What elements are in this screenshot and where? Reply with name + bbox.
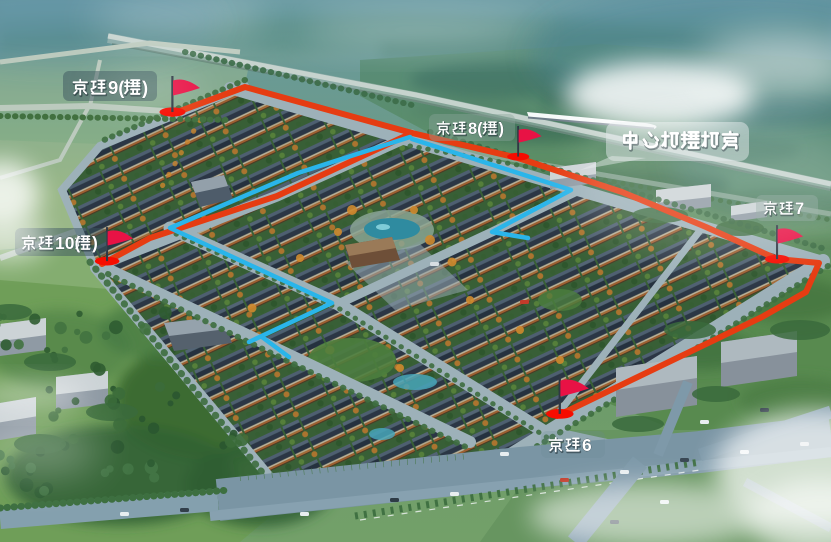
svg-text:8(: 8( <box>468 120 483 138</box>
svg-text:): ) <box>499 120 505 138</box>
svg-text:10(: 10( <box>55 233 80 253</box>
svg-text:6: 6 <box>582 435 592 455</box>
svg-text:): ) <box>92 233 98 253</box>
